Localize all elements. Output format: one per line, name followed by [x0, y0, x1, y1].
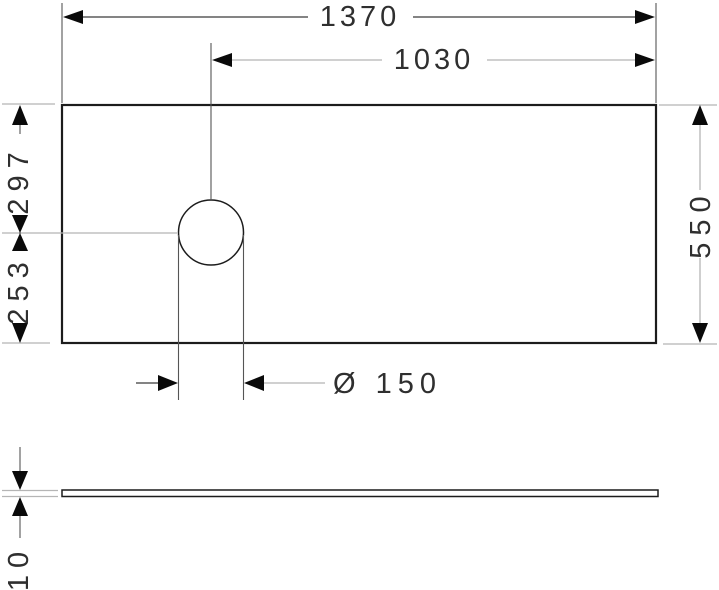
dim-thickness-label: 10 — [3, 545, 35, 590]
arrowhead-down-icon — [692, 323, 708, 343]
arrowhead-up-icon — [12, 497, 28, 516]
arrowhead-left-icon — [212, 53, 232, 67]
arrowhead-up-icon — [692, 105, 708, 125]
arrowhead-down-mid-icon — [12, 215, 28, 233]
dim-thickness: 10 — [2, 447, 58, 590]
dim-depth-label: 550 — [685, 189, 717, 258]
arrowhead-right-icon — [635, 10, 655, 24]
arrowhead-down-icon — [12, 323, 28, 343]
dim-depth: 550 — [659, 105, 717, 344]
dim-hole-to-bottom-label: 253 — [3, 255, 35, 324]
side-view — [62, 490, 658, 497]
dim-hole-diameter-label: Ø 150 — [333, 368, 442, 400]
technical-drawing: 1370 1030 297 253 — [0, 0, 719, 590]
faucet-hole — [179, 200, 244, 265]
arrowhead-right-icon — [635, 53, 655, 67]
plate-side-profile — [62, 490, 658, 497]
arrowhead-up-mid-icon — [12, 233, 28, 251]
plan-view — [62, 105, 656, 343]
arrowhead-down-icon — [12, 471, 28, 490]
panel-outline — [62, 105, 656, 343]
arrowhead-right-icon — [158, 375, 178, 391]
dim-top-to-hole-label: 297 — [3, 145, 35, 214]
dim-overall-width: 1370 — [62, 1, 656, 103]
dimension-drawing-canvas: 1370 1030 297 253 — [0, 0, 719, 590]
arrowhead-left-icon — [244, 375, 264, 391]
arrowhead-up-icon — [12, 105, 28, 125]
arrowhead-left-icon — [63, 10, 83, 24]
dim-hole-offset-label: 1030 — [394, 44, 475, 76]
dim-overall-width-label: 1370 — [320, 1, 401, 33]
